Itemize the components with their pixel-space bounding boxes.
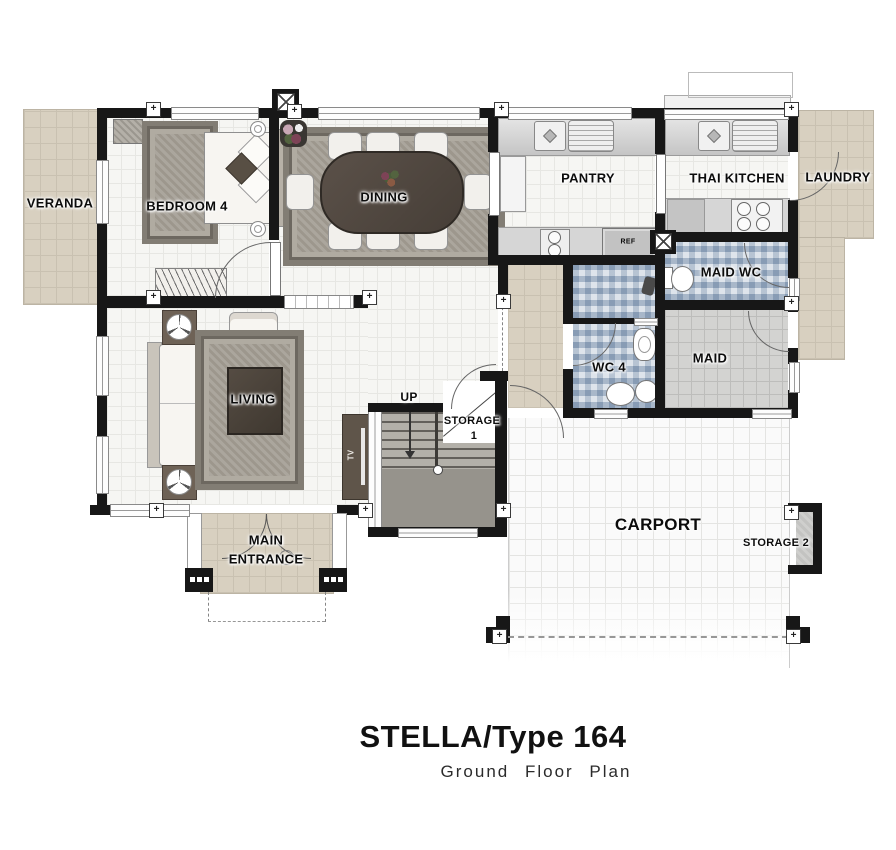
wall-segment <box>655 310 665 418</box>
door-leaf <box>270 242 281 296</box>
porch-side-wall <box>187 513 202 570</box>
main-entrance-label-line2: ENTRANCE <box>229 552 304 567</box>
column-marker: + <box>494 102 509 117</box>
main-entrance-label-line1: MAIN <box>249 533 283 548</box>
maid-label: MAID <box>693 351 727 366</box>
laundry-label: LAUNDRY <box>805 170 870 185</box>
ref-label: REF <box>621 239 636 246</box>
porch-side-wall <box>332 513 347 570</box>
porch-dashed-line <box>325 592 326 622</box>
carport-fade <box>507 590 789 670</box>
wall-segment <box>368 403 443 412</box>
wardrobe <box>113 119 143 144</box>
eave-outline <box>688 72 793 98</box>
burner-icon <box>756 202 770 216</box>
window <box>752 409 792 419</box>
column-marker: + <box>492 629 507 644</box>
column-marker: + <box>496 503 511 518</box>
burner-icon <box>737 202 751 216</box>
flower-pot <box>280 120 307 147</box>
dining-chair <box>286 174 314 210</box>
carport-dashed-line <box>508 636 788 638</box>
tv-label: TV <box>347 450 356 461</box>
wall-segment <box>655 300 798 310</box>
burner-icon <box>756 217 770 231</box>
storage2-label: STORAGE 2 <box>743 537 809 549</box>
window <box>96 436 109 494</box>
kitchen-sink-drainboard <box>732 120 778 152</box>
bedroom4-label: BEDROOM 4 <box>146 199 227 214</box>
laundry-floor-lower <box>798 237 845 360</box>
porch-dashed-line <box>208 592 209 622</box>
table-centerpiece <box>378 169 402 187</box>
column-marker: + <box>149 503 164 518</box>
dining-label: DINING <box>360 190 407 205</box>
wall-segment <box>788 200 798 278</box>
up-arrow-line <box>409 409 411 451</box>
up-arrow-head <box>405 451 415 459</box>
wc4-toilet-bowl <box>606 382 635 406</box>
plan-title: STELLA/Type 164 <box>359 719 626 755</box>
door-leaf <box>489 152 500 216</box>
storage1-label: STORAGE <box>444 415 500 427</box>
floor-plan: TV REF <box>0 0 896 850</box>
column-marker: + <box>358 503 373 518</box>
porch-dashed-line <box>208 621 325 622</box>
ceiling-speaker-icon <box>250 121 266 137</box>
burner-icon <box>737 217 751 231</box>
carport-column-notch <box>800 616 810 627</box>
storage1-number: 1 <box>471 430 477 442</box>
ceiling-speaker-icon <box>250 221 266 237</box>
plan-subtitle: Ground Floor Plan <box>441 762 632 782</box>
stair-landing <box>380 469 495 527</box>
window <box>96 160 109 224</box>
column-marker: + <box>784 505 799 520</box>
column-marker: + <box>786 629 801 644</box>
tv-screen <box>361 428 365 485</box>
thai-kitchen-label: THAI KITCHEN <box>689 171 784 186</box>
maid-wc-toilet-bowl <box>671 266 694 292</box>
up-label: UP <box>400 390 417 404</box>
wall-segment <box>269 118 279 240</box>
wall-segment <box>488 255 658 265</box>
pantry-label: PANTRY <box>561 171 615 186</box>
column-marker: + <box>496 294 511 309</box>
veranda-label: VERANDA <box>27 196 93 211</box>
hall-buffet <box>284 295 354 309</box>
column-marker: + <box>146 102 161 117</box>
column-x-icon <box>655 233 672 250</box>
window <box>96 336 109 396</box>
carport-column-notch <box>486 616 496 627</box>
living-label: LIVING <box>230 392 275 407</box>
wall-segment <box>813 503 822 574</box>
column-marker: + <box>784 296 799 311</box>
pantry-sink-drainboard <box>568 120 614 152</box>
stair-stringer <box>435 405 438 469</box>
wall-segment <box>788 565 822 574</box>
wall-segment <box>655 232 798 242</box>
window <box>594 409 628 419</box>
kitchen-prep-block <box>667 199 705 233</box>
porch-column-dots <box>324 577 329 582</box>
column-marker: + <box>784 102 799 117</box>
wall-segment <box>563 263 573 323</box>
window <box>318 107 480 120</box>
window <box>664 109 789 120</box>
stair-newel <box>433 465 443 475</box>
wall-segment <box>90 505 112 515</box>
carport-label: CARPORT <box>615 515 701 535</box>
window <box>789 362 800 393</box>
window <box>508 107 632 120</box>
burner-icon <box>548 231 561 244</box>
maid-wc-label: MAID WC <box>701 265 762 280</box>
wc4-label: WC 4 <box>592 360 626 375</box>
window <box>398 528 478 538</box>
column-marker: + <box>287 104 302 119</box>
wall-segment <box>655 118 665 154</box>
pantry-tall-cabinet <box>500 156 526 212</box>
porch-column-dots <box>190 577 195 582</box>
window <box>634 318 658 326</box>
table-fan-icon <box>166 469 192 495</box>
column-marker: + <box>362 290 377 305</box>
table-fan-icon <box>166 314 192 340</box>
dining-chair <box>464 174 492 210</box>
overhead-dashed-line <box>502 302 503 371</box>
wc4-sink-basin <box>638 336 651 353</box>
door-leaf <box>656 154 666 214</box>
window <box>171 107 259 120</box>
column-marker: + <box>146 290 161 305</box>
